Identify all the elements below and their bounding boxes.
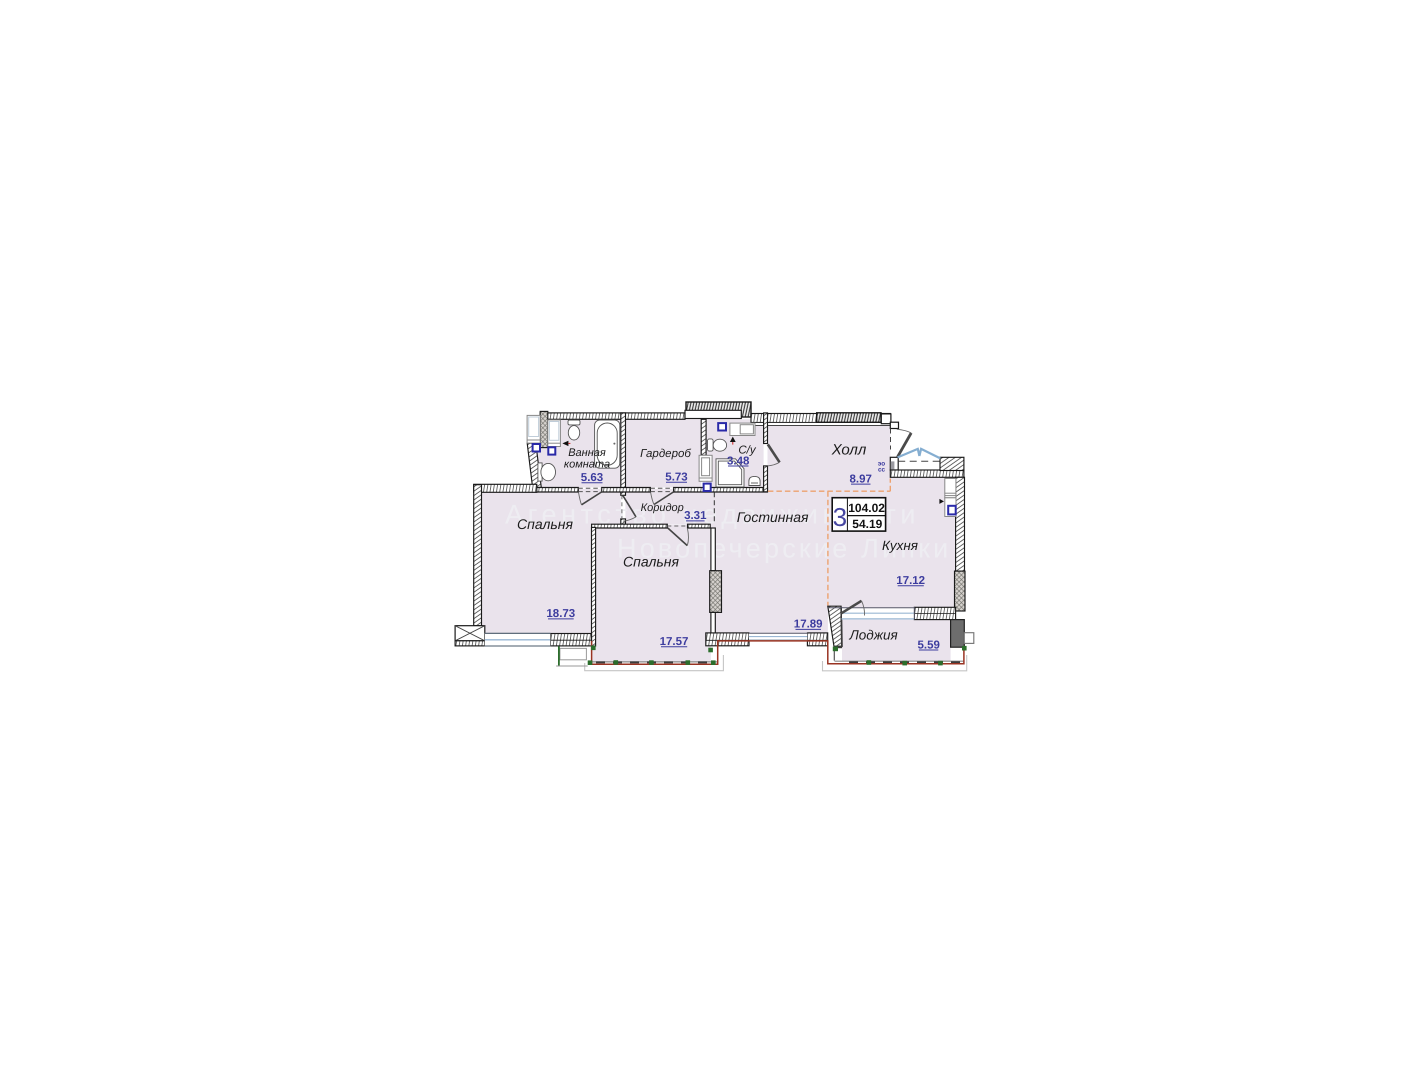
svg-text:Ванная: Ванная xyxy=(568,447,606,459)
svg-text:Спальня: Спальня xyxy=(623,554,679,570)
svg-text:Гостинная: Гостинная xyxy=(737,509,809,525)
svg-text:Лоджия: Лоджия xyxy=(848,628,897,643)
svg-text:сс: сс xyxy=(878,467,886,474)
svg-text:Гардероб: Гардероб xyxy=(640,448,691,460)
svg-text:Спальня: Спальня xyxy=(517,516,573,532)
svg-text:Холл: Холл xyxy=(831,441,867,458)
svg-text:104.02: 104.02 xyxy=(848,501,885,515)
svg-text:Коридор: Коридор xyxy=(641,502,684,514)
svg-text:Кухня: Кухня xyxy=(882,538,918,553)
svg-text:3: 3 xyxy=(833,502,847,532)
svg-text:54.19: 54.19 xyxy=(852,517,882,531)
svg-text:комната: комната xyxy=(564,459,610,471)
